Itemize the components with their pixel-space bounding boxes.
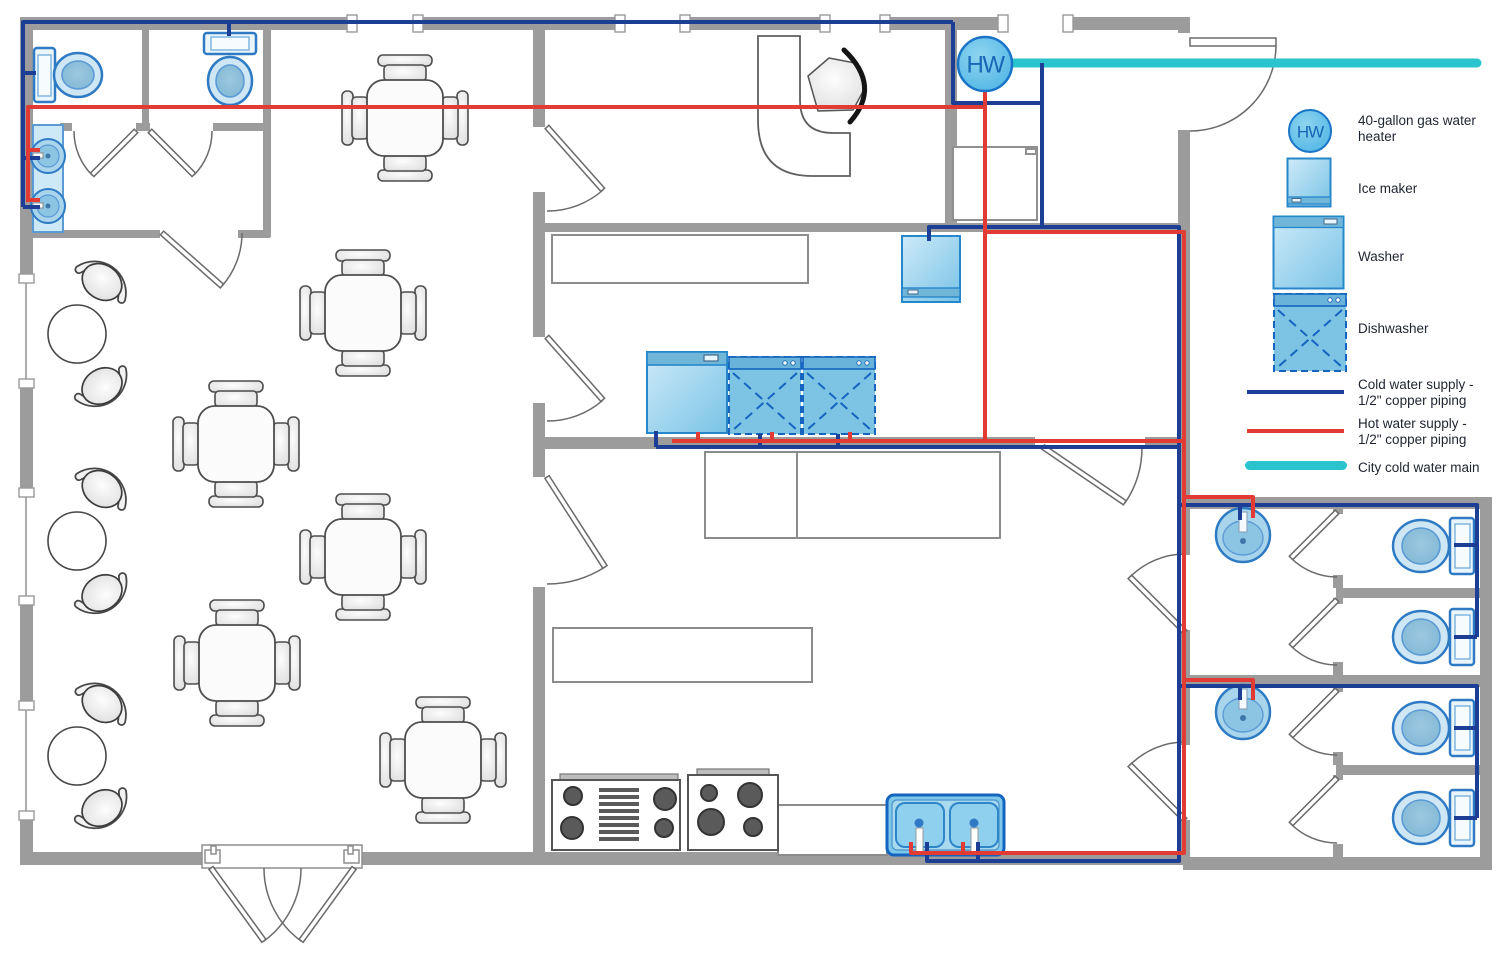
toilet <box>204 33 256 105</box>
legend-cold-water-line <box>1247 390 1344 394</box>
round-table <box>48 675 133 836</box>
round-table <box>48 460 133 621</box>
square-table <box>380 697 506 823</box>
legend-dishwasher-icon <box>1272 292 1348 377</box>
range-1 <box>552 774 680 850</box>
washer <box>647 352 727 433</box>
legend-city-main-line <box>1245 461 1347 470</box>
square-table <box>173 381 299 507</box>
legend-ice-maker-label: Ice maker <box>1358 181 1417 197</box>
legend-cold-water-label: Cold water supply - 1/2" copper piping <box>1358 377 1474 409</box>
kitchen-counters <box>552 147 1037 855</box>
kitchen-double-sink <box>887 795 1004 855</box>
water-heater-label: HW <box>967 52 1006 79</box>
dining-furniture <box>48 55 506 836</box>
legend-washer-label: Washer <box>1358 249 1404 265</box>
dishwasher <box>729 357 801 434</box>
refrigerator <box>953 147 1037 220</box>
svg-text:HW: HW <box>1297 123 1324 142</box>
ice-maker <box>902 236 960 302</box>
water-heater: HW <box>958 37 1012 91</box>
square-table <box>174 600 300 726</box>
restroom-sink <box>1216 508 1270 562</box>
range-2 <box>688 769 778 850</box>
legend-washer-icon <box>1272 215 1346 296</box>
square-table <box>300 250 426 376</box>
restroom-sink <box>1216 685 1270 739</box>
toilet <box>34 48 102 102</box>
legend-city-main-label: City cold water main <box>1358 460 1480 476</box>
dishwasher <box>803 357 875 434</box>
legend-ice-maker-icon <box>1286 157 1333 214</box>
square-table <box>300 494 426 620</box>
legend-hot-water-line <box>1247 429 1344 433</box>
square-table <box>342 55 468 181</box>
restroom-sink-counter <box>31 125 65 232</box>
legend-water-heater-label: 40-gallon gas water heater <box>1358 113 1476 145</box>
legend-hot-water-label: Hot water supply - 1/2" copper piping <box>1358 416 1467 448</box>
round-table <box>48 253 133 414</box>
legend-dishwasher-label: Dishwasher <box>1358 321 1429 337</box>
legend-water-heater-icon: HW <box>1286 107 1334 160</box>
legend: HW 40-gallon gas water heater Ice maker … <box>1244 100 1500 490</box>
plumbing-floor-plan: HW HW 40-gallon gas water heater Ice mak… <box>0 0 1500 957</box>
